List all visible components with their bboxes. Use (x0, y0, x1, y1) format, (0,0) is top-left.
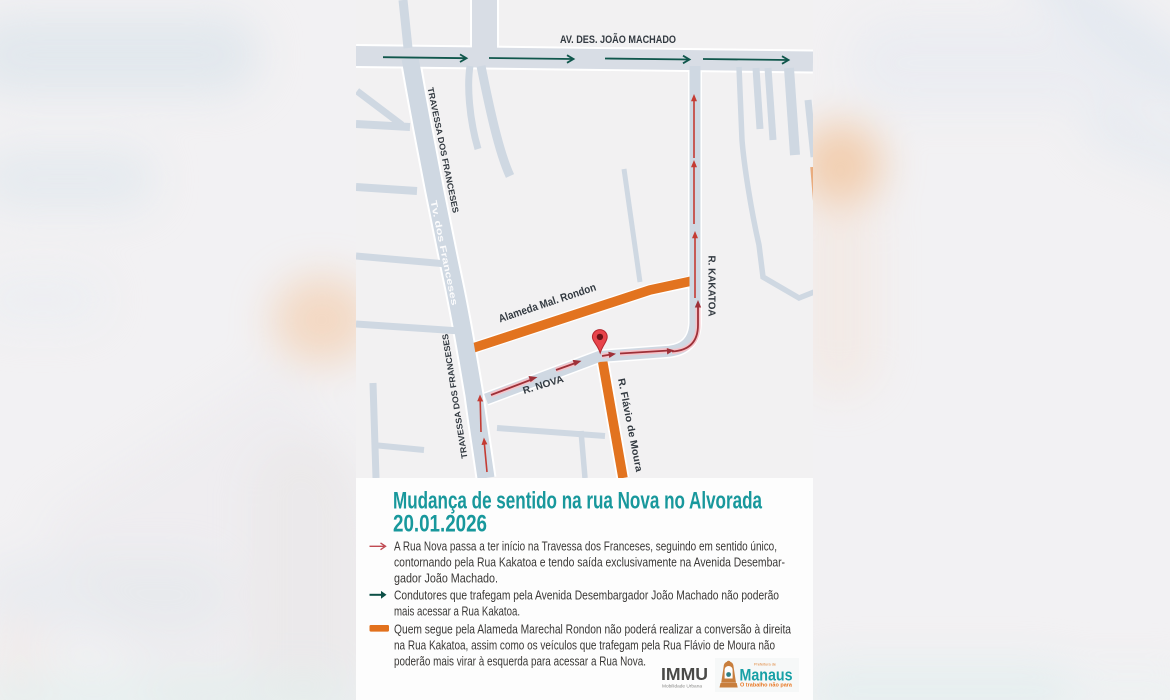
svg-text:20.01.2026: 20.01.2026 (393, 511, 487, 538)
svg-text:contornando pela Rua Kakatoa e: contornando pela Rua Kakatoa e tendo saí… (394, 555, 785, 570)
svg-text:na Rua Kakatoa, assim como os: na Rua Kakatoa, assim como os veículos q… (394, 638, 775, 653)
svg-text:O trabalho não para: O trabalho não para (740, 683, 792, 689)
svg-text:gador João Machado.: gador João Machado. (394, 571, 498, 586)
svg-text:Quem segue pela Alameda Marech: Quem segue pela Alameda Marechal Rondon … (394, 622, 792, 637)
svg-text:Mobilidade Urbana: Mobilidade Urbana (662, 684, 702, 689)
svg-text:poderão mais virar à esquerda: poderão mais virar à esquerda para acess… (394, 654, 646, 669)
svg-text:mais acessar a Rua Kakatoa.: mais acessar a Rua Kakatoa. (394, 604, 520, 619)
svg-text:R. KAKATOA: R. KAKATOA (706, 256, 717, 317)
svg-text:Condutores que trafegam pela A: Condutores que trafegam pela Avenida Des… (394, 588, 779, 603)
svg-text:AV. DES. JOÃO MACHADO: AV. DES. JOÃO MACHADO (560, 33, 676, 46)
svg-text:IMMU: IMMU (661, 664, 708, 684)
svg-text:A Rua Nova passa a ter início: A Rua Nova passa a ter início na Travess… (394, 539, 777, 554)
